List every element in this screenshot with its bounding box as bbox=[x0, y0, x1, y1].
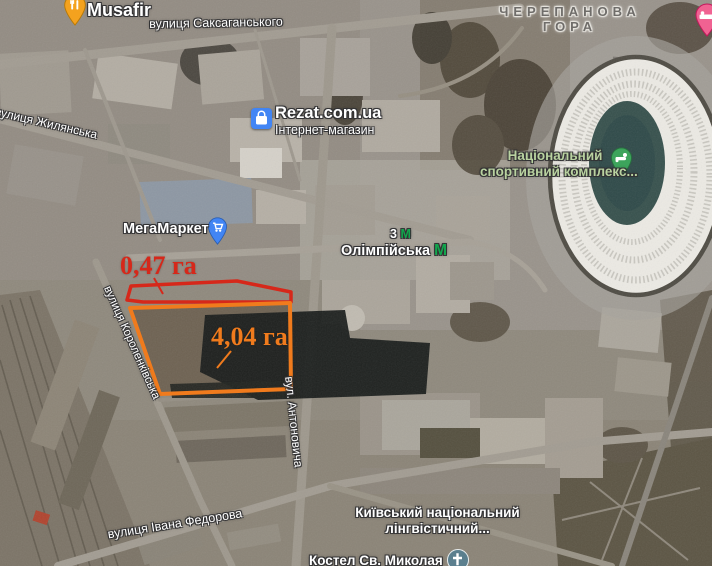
linguistic-line2: лінгвістичний... bbox=[355, 521, 520, 537]
poi-label-megamarket[interactable]: МегаМаркет bbox=[123, 221, 209, 238]
metro-exit-number: 3 bbox=[390, 227, 397, 241]
poi-label-church[interactable]: Костел Св. Миколая bbox=[309, 553, 443, 566]
poi-label-metro-olimpiiska[interactable]: Олімпійська М bbox=[341, 242, 447, 260]
satellite-imagery bbox=[0, 0, 712, 566]
metro-entrance-label[interactable]: 3 М bbox=[390, 227, 411, 241]
district-label-cherepanova-hora: ЧЕРЕПАНОВА ГОРА bbox=[490, 4, 650, 34]
metro-icon: М bbox=[400, 227, 410, 241]
area-measurement-red: 0,47 га bbox=[120, 251, 197, 281]
poi-label-rezat[interactable]: Rezat.com.ua bbox=[275, 104, 381, 123]
district-line1: ЧЕРЕПАНОВА bbox=[490, 4, 650, 19]
shopping-bag-icon[interactable] bbox=[251, 108, 272, 129]
district-line2: ГОРА bbox=[490, 19, 650, 34]
metro-station-name: Олімпійська bbox=[341, 243, 430, 259]
area-measurement-orange: 4,04 га bbox=[211, 322, 288, 352]
poi-label-linguistic-university[interactable]: Київський національний лінгвістичний... bbox=[355, 505, 520, 536]
hotel-pin-icon[interactable] bbox=[694, 3, 712, 37]
shopping-pin-icon[interactable] bbox=[207, 217, 228, 245]
satellite-map[interactable]: Musafir вулиця Саксаганського ЧЕРЕПАНОВА… bbox=[0, 0, 712, 566]
metro-icon: М bbox=[434, 242, 447, 259]
sports-complex-line2: спортивний комплекс... bbox=[480, 164, 630, 180]
restaurant-pin-icon[interactable] bbox=[63, 0, 87, 26]
linguistic-line1: Київський національний bbox=[355, 505, 520, 521]
poi-label-sports-complex[interactable]: Національний спортивний комплекс... bbox=[480, 148, 630, 179]
church-cross-icon[interactable] bbox=[447, 549, 469, 566]
sports-complex-line1: Національний bbox=[480, 148, 630, 164]
street-label-saksahanskoho: вулиця Саксаганського bbox=[149, 15, 283, 32]
poi-label-musafir[interactable]: Musafir bbox=[87, 0, 151, 21]
poi-sublabel-rezat[interactable]: Інтернет-магазин bbox=[275, 123, 374, 137]
